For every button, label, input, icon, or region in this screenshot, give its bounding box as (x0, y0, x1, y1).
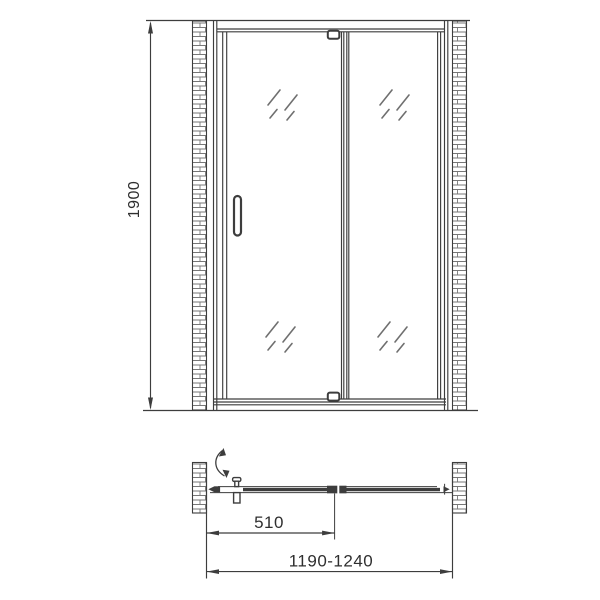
top-pivot-hinge (328, 31, 340, 39)
pivot-block (208, 486, 220, 492)
plan-view: 510 1190-1240 (193, 448, 467, 579)
glass-hatch-door-top (268, 90, 297, 120)
glass-hatch-fixed-top (380, 90, 409, 120)
door-handle (234, 196, 241, 236)
technical-drawing-page: 1900 (0, 0, 600, 600)
arrow-left (207, 531, 220, 536)
brick-wall-right (453, 21, 467, 410)
plan-brick-wall-right (453, 463, 467, 514)
magnet-profile (327, 485, 347, 494)
glass-hatch-fixed-bottom (378, 322, 407, 352)
door-width-dimension: 510 (207, 494, 335, 540)
fixed-glass-panel (347, 32, 441, 399)
plan-brick-wall-left (193, 463, 207, 514)
swing-direction-arrow (216, 448, 230, 478)
overall-width-label: 1190-1240 (289, 552, 374, 571)
brick-wall-left (193, 21, 207, 410)
wall-profile-right (445, 21, 448, 411)
height-dimension: 1900 (126, 21, 153, 410)
height-dimension-label: 1900 (126, 181, 143, 219)
overall-width-dimension: 1190-1240 (207, 552, 453, 575)
glass-hatch-door-bottom (266, 322, 295, 352)
swing-arrow-tip-bottom (223, 470, 230, 478)
shower-door-drawing: 1900 (0, 0, 600, 600)
arrow-right (322, 531, 335, 536)
plan-door-handle (233, 478, 241, 503)
bottom-pivot-hinge (328, 393, 340, 401)
arrow-left (207, 569, 220, 574)
arrow-down (148, 398, 153, 411)
arrow-up (148, 21, 153, 34)
arrow-right (440, 569, 453, 574)
door-width-label: 510 (254, 513, 284, 532)
wall-profile-left (214, 21, 217, 411)
front-elevation-view: 1900 (126, 21, 478, 411)
